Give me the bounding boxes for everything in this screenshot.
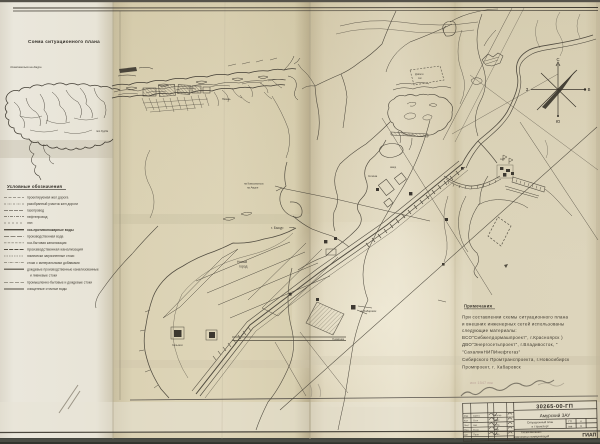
svg-text:Гл.сп: Гл.сп (473, 430, 479, 432)
svg-text:Колев: Колев (495, 415, 502, 417)
svg-text:хоз-противопожарные воды: хоз-противопожарные воды (27, 228, 74, 232)
svg-text:Хальгасо: Хальгасо (172, 344, 183, 347)
svg-text:нефтепровод: нефтепровод (27, 215, 48, 219)
svg-text:Пров: Пров (473, 434, 479, 436)
svg-text:очищенные сточные воды: очищенные сточные воды (27, 287, 68, 291)
svg-text:производственная вода: производственная вода (27, 235, 63, 239)
svg-text:Схема ситуационного плана: Схема ситуационного плана (28, 39, 100, 44)
svg-text:промышленно-бытовые и дождевые: промышленно-бытовые и дождевые стоки (27, 281, 92, 285)
svg-text:проектируемая жел дорога: проектируемая жел дорога (27, 196, 68, 200)
svg-text:Изм: Изм (464, 416, 469, 418)
svg-text:стоки с минеральными добавками: стоки с минеральными добавками (27, 261, 80, 265)
svg-text:и г.транспорт: и г.транспорт (532, 424, 550, 428)
svg-text:Новый: Новый (237, 260, 247, 264)
svg-text:⟶: ⟶ (289, 226, 295, 230)
svg-text:производственная канализация: производственная канализация (27, 248, 83, 252)
svg-text:дождевые производственные кана: дождевые производственные канализованные (27, 267, 99, 271)
svg-text:лэп: лэп (27, 221, 33, 225)
svg-text:Смета: Смета (473, 415, 481, 417)
svg-text:Дзёмги: Дзёмги (415, 73, 424, 76)
svg-text:При составлении схемы ситуацио: При составлении схемы ситуационного план… (462, 315, 568, 320)
svg-text:хоз-бытовая канализация: хоз-бытовая канализация (27, 241, 67, 245)
svg-text:ГИП: ГИП (464, 439, 469, 441)
svg-text:ГИАП: ГИАП (582, 432, 596, 438)
svg-text:Силинка: Силинка (368, 176, 378, 178)
svg-text:Хумминка: Хумминка (332, 337, 345, 341)
svg-text:г.Комсомольск на Амуре: г.Комсомольск на Амуре (10, 65, 42, 69)
svg-text:г. Быкур: г. Быкур (271, 226, 284, 230)
svg-text:на Комсомольск: на Комсомольск (244, 182, 264, 186)
svg-text:С: С (556, 57, 559, 62)
svg-text:Примечания: Примечания (464, 304, 493, 309)
svg-text:пос.: пос. (418, 78, 423, 80)
svg-text:"СахалинНИПИнефтегаз": "СахалинНИПИнефтегаз" (462, 350, 521, 355)
svg-text:завод: завод (390, 167, 397, 169)
svg-text:город: город (239, 265, 248, 269)
svg-text:и внешних инженерных сетей исп: и внешних инженерных сетей использованы (462, 322, 564, 327)
svg-text:Под: Под (464, 430, 469, 432)
svg-text:Условные обозначения: Условные обозначения (7, 184, 62, 189)
svg-text:В: В (588, 87, 591, 92)
svg-text:следующие материалы:: следующие материалы: (462, 328, 517, 333)
svg-text:Сибирского Промтранспроекта, г: Сибирского Промтранспроекта, г.Новосибир… (462, 357, 569, 362)
svg-text:и ливневые стоки: и ливневые стоки (30, 274, 57, 278)
svg-text:Согл: Согл (473, 420, 479, 422)
svg-text:ВСО"Сибжелдормашпроект", г.Кра: ВСО"Сибжелдормашпроект", г.Красноярск ) (462, 335, 563, 340)
svg-text:Пивань: Пивань (222, 98, 231, 101)
svg-text:исх 1547 юж: исх 1547 юж (470, 380, 493, 385)
svg-text:ДВО"Энергосетьпроект", г.Влад: ДВО"Энергосетьпроект", г.Владивосток, " (462, 342, 558, 347)
svg-text:Амурский ЗАУ: Амурский ЗАУ (540, 412, 571, 419)
svg-text:на Амуре: на Амуре (247, 186, 259, 190)
svg-text:газопровод: газопровод (27, 209, 44, 213)
svg-text:химически загрязненные стоки: химически загрязненные стоки (27, 254, 74, 258)
svg-text:разобранный участок жел дороги: разобранный участок жел дороги (27, 202, 78, 206)
svg-text:пос.Хурба: пос.Хурба (96, 129, 109, 133)
svg-text:ГП: ГП (568, 419, 571, 423)
svg-text:30265-00-ГП: 30265-00-ГП (536, 404, 573, 411)
svg-text:инженерных коммуникаций: инженерных коммуникаций (513, 434, 549, 439)
svg-text:Промпроект, г. Хабаровск: Промпроект, г. Хабаровск (462, 364, 521, 369)
svg-text:на Хабаровск: на Хабаровск (360, 309, 377, 313)
svg-text:сав: сав (568, 425, 573, 428)
